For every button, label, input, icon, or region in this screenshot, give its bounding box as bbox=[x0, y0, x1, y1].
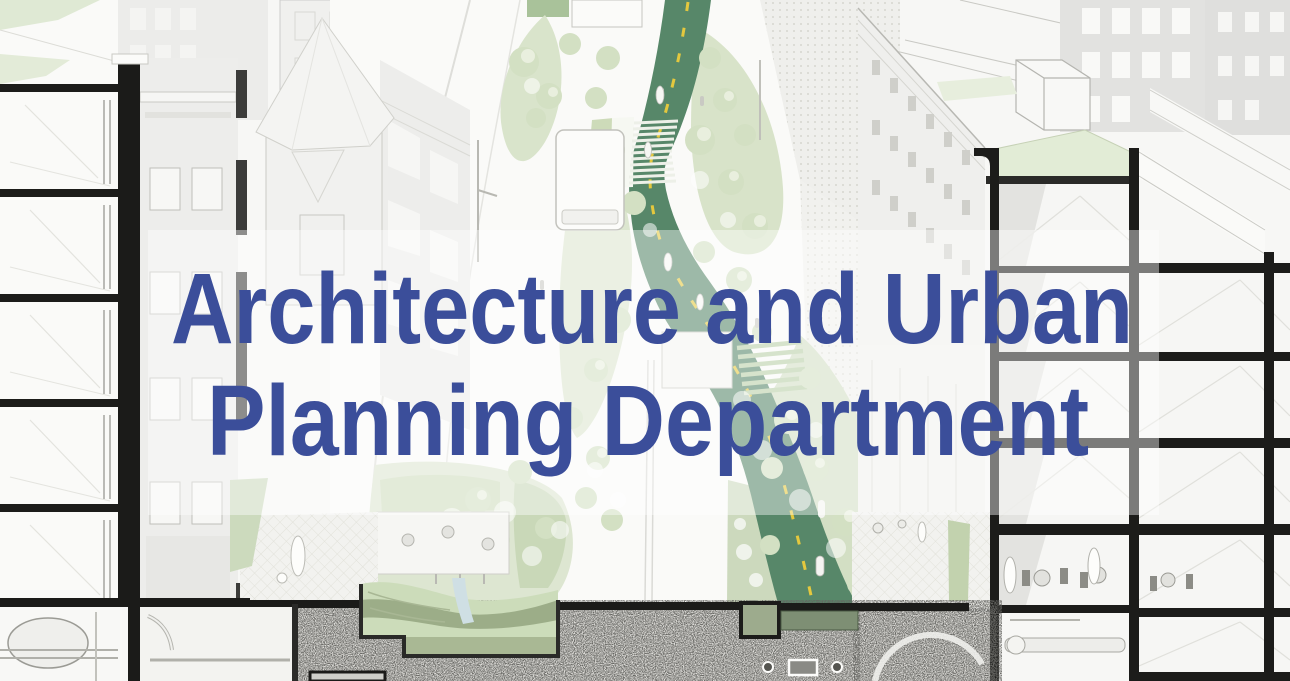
svg-text:Architecture and Urban: Architecture and Urban bbox=[171, 252, 1133, 364]
svg-text:Planning Department: Planning Department bbox=[207, 365, 1089, 477]
